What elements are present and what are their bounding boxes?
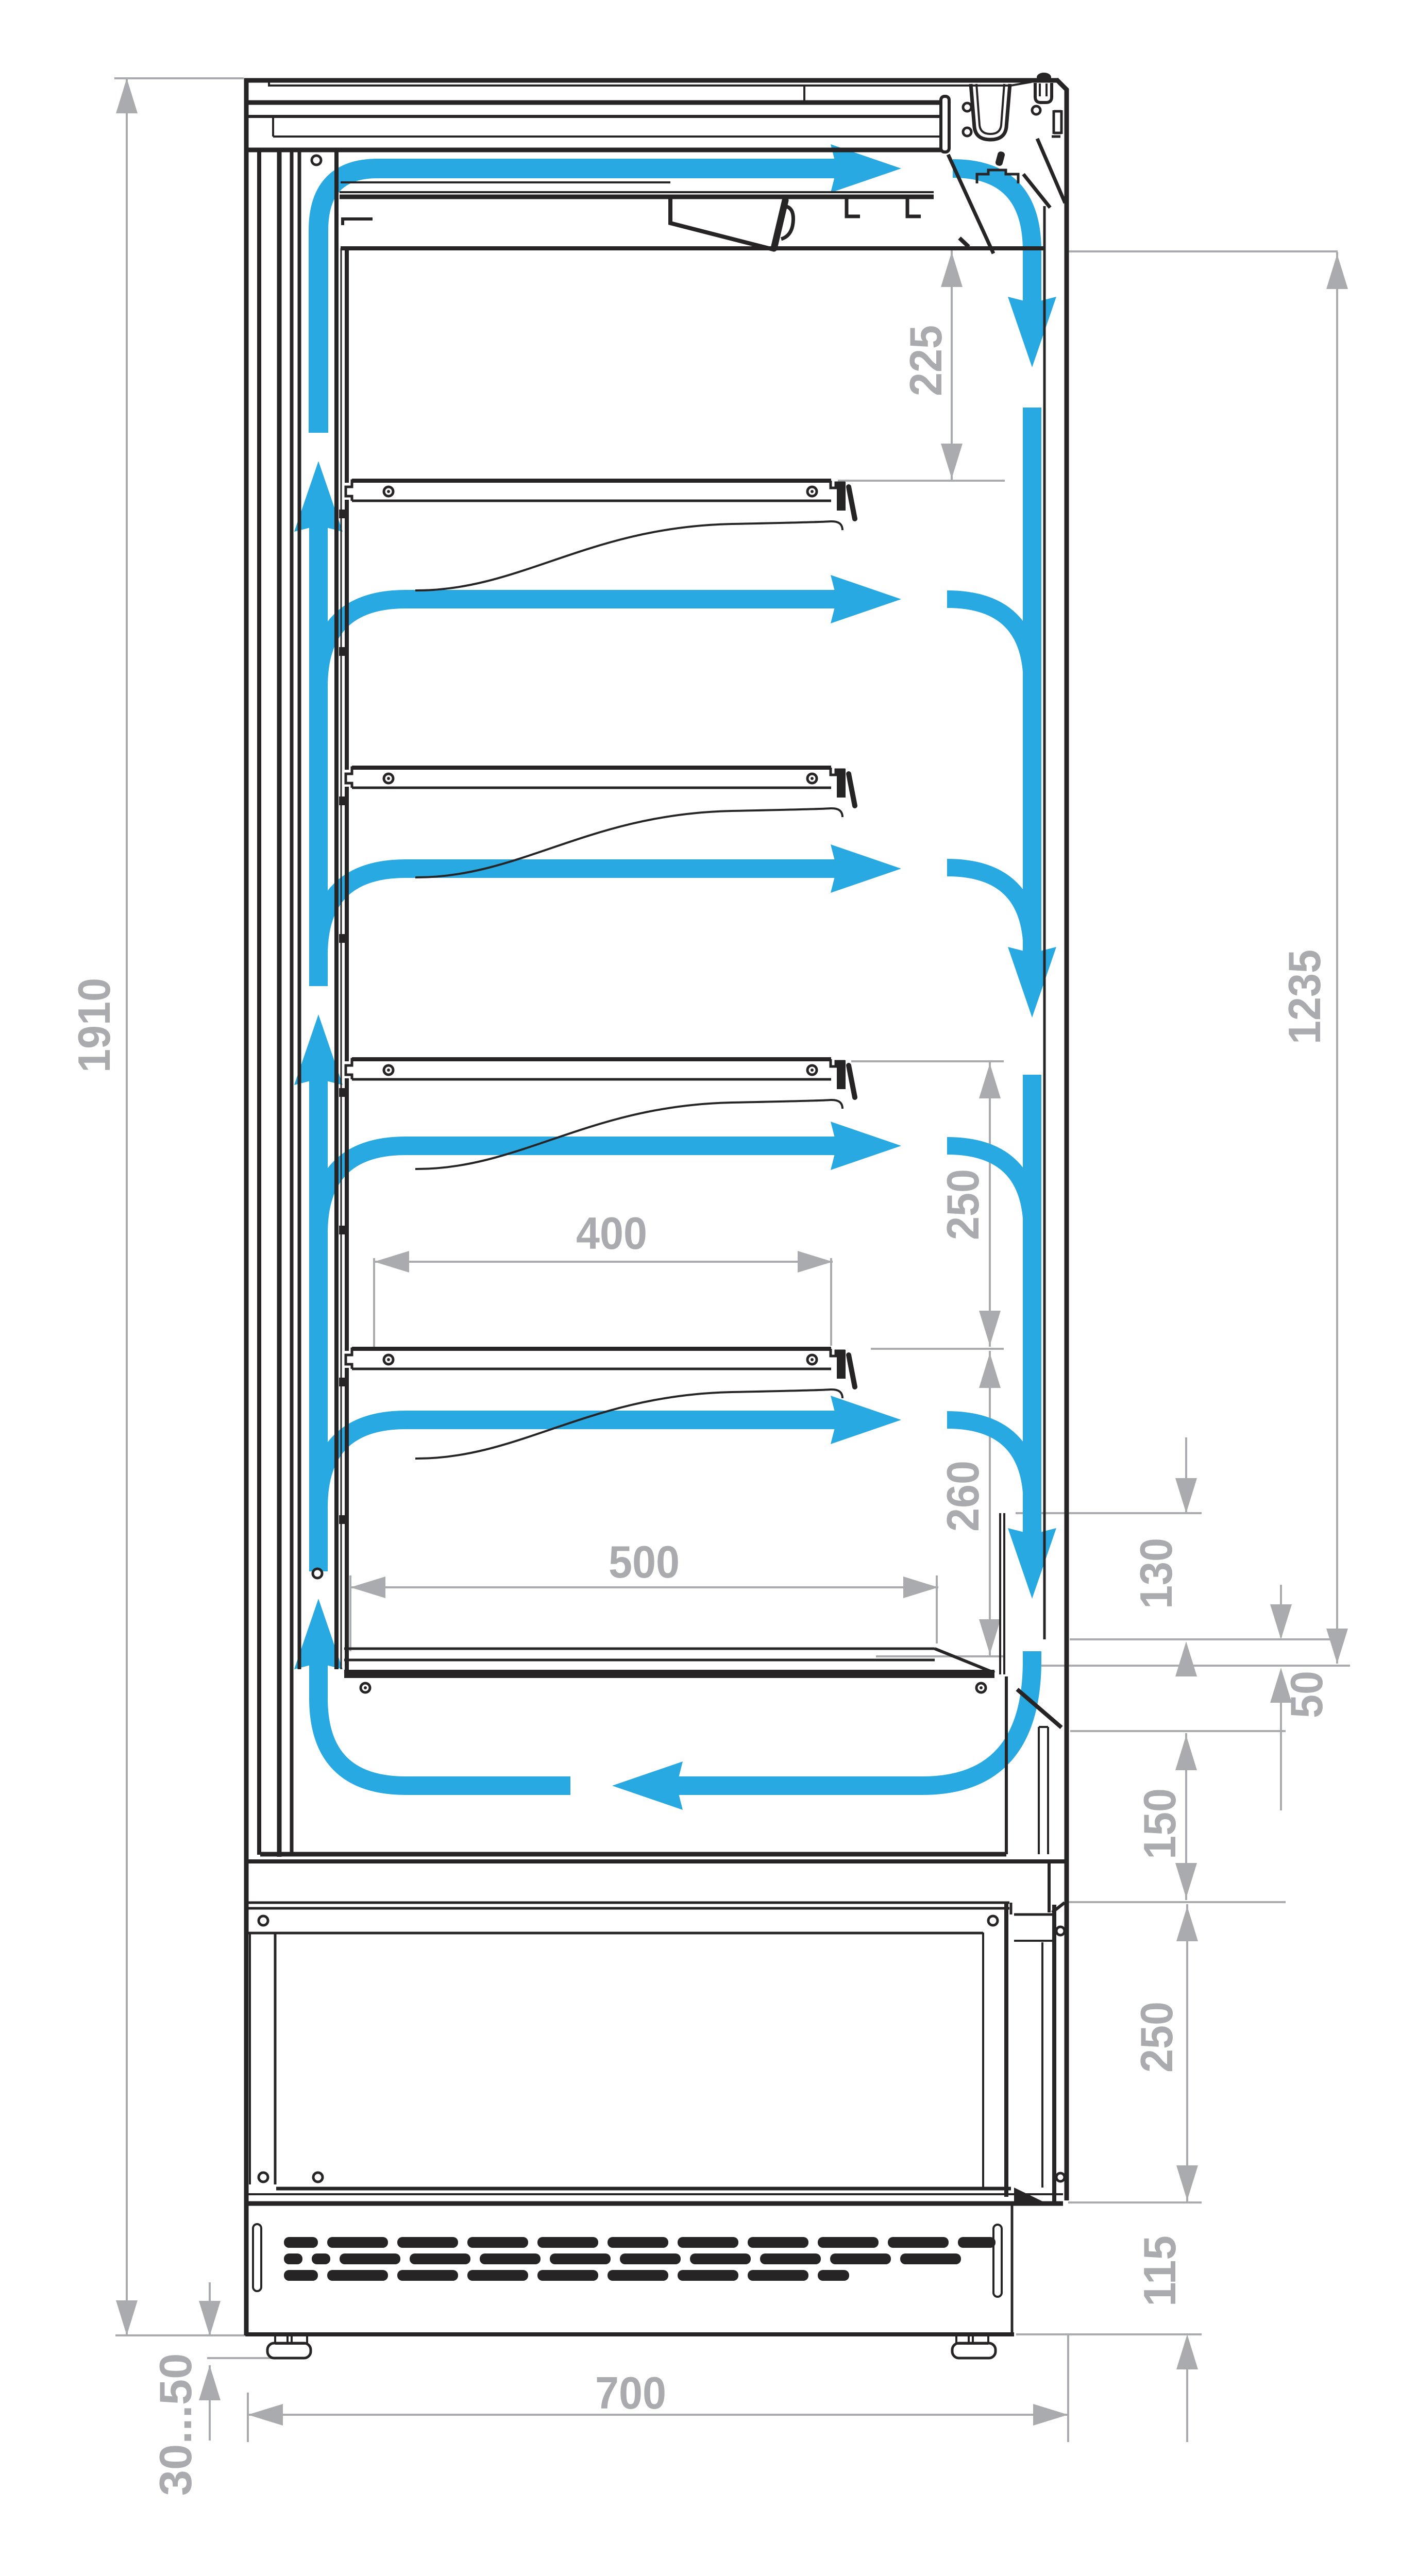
- svg-text:30...50: 30...50: [150, 2353, 201, 2496]
- svg-text:225: 225: [900, 325, 951, 396]
- svg-text:1235: 1235: [1279, 950, 1330, 1044]
- svg-text:1910: 1910: [69, 978, 120, 1073]
- svg-text:700: 700: [595, 2367, 666, 2418]
- svg-text:115: 115: [1134, 2235, 1185, 2307]
- svg-text:260: 260: [937, 1461, 988, 1532]
- svg-text:250: 250: [937, 1169, 988, 1240]
- svg-text:150: 150: [1134, 1788, 1185, 1859]
- svg-text:50: 50: [1281, 1671, 1332, 1718]
- svg-text:400: 400: [576, 1208, 647, 1259]
- svg-text:130: 130: [1131, 1538, 1182, 1609]
- svg-text:500: 500: [609, 1536, 680, 1587]
- svg-text:250: 250: [1131, 2002, 1182, 2073]
